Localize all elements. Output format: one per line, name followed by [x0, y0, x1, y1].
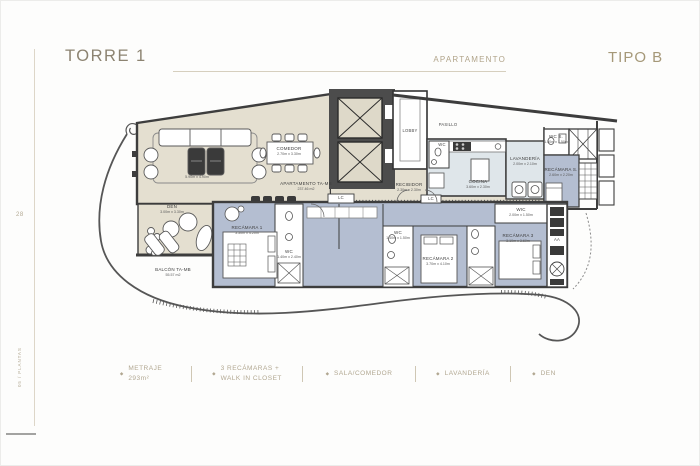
room-label-lavanderia: LAVANDERÍA2.00m x 2.10m: [510, 156, 540, 166]
duct-shafts: [599, 129, 614, 205]
room-label-apartamento: APARTAMENTO TA-MB237.46 m2: [280, 181, 332, 191]
room-label-den: DEN3.00m x 3.30m: [160, 204, 184, 214]
room-label-recamara-3: RECÁMARA 33.10m x 3.60m: [502, 233, 533, 243]
room-label-cocina: COCINA3.60m x 2.30m: [466, 179, 490, 189]
room-label-recamara-2: RECÁMARA 23.70m x 4.10m: [422, 256, 453, 266]
room-label-comedor: COMEDOR2.70m x 3.30m: [277, 146, 302, 156]
room-label-aa: AA: [554, 237, 560, 242]
room-label-recamara-1: RECÁMARA 13.50m x 4.20m: [231, 225, 262, 235]
room-label-wc-s: WC S.1.50m x 1.50m: [544, 134, 568, 144]
room-label-balcon: BALCÓN TA-MB55.57 m2: [155, 267, 191, 277]
laundry-area: [506, 141, 544, 199]
brochure-page: 28 05 / PLANTAS TORRE 1 APARTAMENTO TIPO…: [0, 0, 700, 466]
room-label-sala: SALA5.90m x 4.90m: [185, 169, 209, 179]
room-label-lobby: LOBBY: [403, 128, 418, 133]
room-label-wc-1: WC1.40m x 2.40m: [277, 249, 301, 259]
room-label-recamara-s: RECÁMARA S.2.60m x 2.20m: [545, 167, 578, 177]
room-label-lc-1: LC: [338, 195, 344, 200]
room-label-wic-3: WIC2.00m x 1.50m: [509, 207, 533, 217]
room-label-wc-2: WC1.40m x 1.50m: [386, 230, 410, 240]
floor-plan-drawing: [1, 1, 700, 466]
room-label-pasillo: PASILLO: [439, 122, 458, 127]
elevator-core: [329, 89, 395, 189]
room-label-lc-2: LC: [428, 196, 434, 201]
room-label-powder-wc: WC: [438, 142, 445, 147]
room-label-recibidor: RECIBIDOR2.30m x 2.30m: [396, 182, 423, 192]
